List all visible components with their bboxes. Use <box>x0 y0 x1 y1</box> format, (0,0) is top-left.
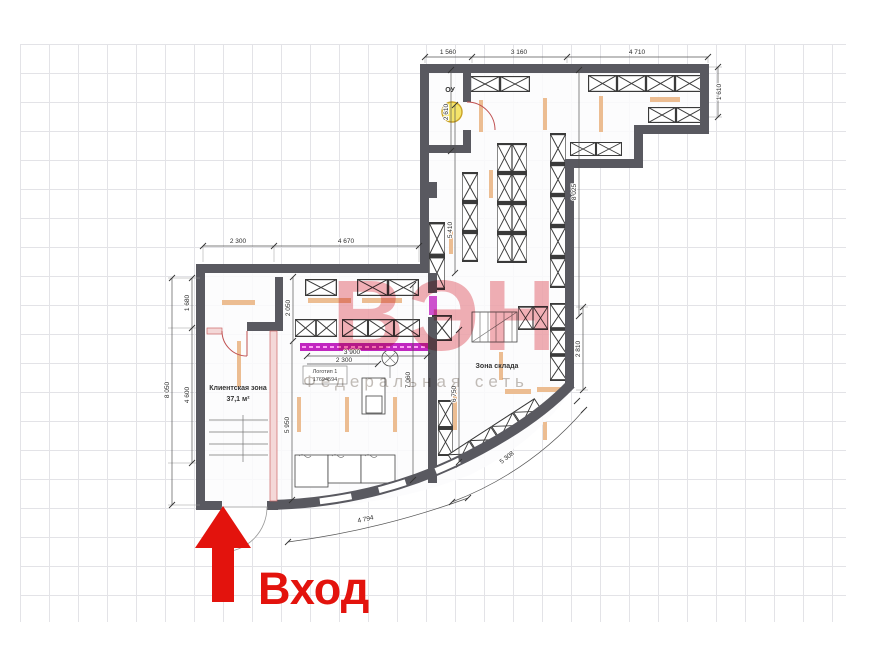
fixture-strip <box>650 97 680 102</box>
shelf-cell <box>512 144 526 172</box>
shelf-cell <box>550 227 565 256</box>
shelf-cell <box>597 142 622 155</box>
shelf-cell <box>429 223 444 255</box>
dim-label: 8 050 <box>164 381 171 398</box>
fixture-strip <box>297 397 301 432</box>
shelf-cell <box>462 173 477 201</box>
shelf-cell <box>462 233 477 261</box>
shelf-cell <box>649 108 676 123</box>
dim-label: 4 670 <box>338 238 355 245</box>
shelf-cell <box>618 76 646 92</box>
shelf-cell <box>550 165 565 194</box>
shelf-cell <box>471 77 500 92</box>
dim-label: 8 025 <box>571 183 578 200</box>
dim-label: 2 300 <box>230 238 247 245</box>
dim-label: 4 710 <box>629 49 646 56</box>
shelf-cell <box>497 174 511 202</box>
shelf-cell <box>438 429 452 455</box>
dim-label: 1 680 <box>184 294 191 311</box>
floor-plan-canvas: Логотип 1 17694594 <box>0 0 870 652</box>
shelf-cell <box>497 234 511 262</box>
lighting-unit-label: ОУ <box>445 87 455 94</box>
shelf-cell <box>677 108 704 123</box>
shelf-cell <box>501 77 530 92</box>
shelf-cell <box>497 204 511 232</box>
dim-label: 1 610 <box>716 83 723 100</box>
shelf-cell <box>676 76 704 92</box>
shelf-cell <box>462 203 477 231</box>
dim-label: 5 950 <box>284 416 291 433</box>
watermark-subtitle: Федеральная сеть <box>303 372 529 391</box>
checkout-counters <box>295 455 395 488</box>
dim-label: 1 560 <box>440 49 457 56</box>
fixture-strip <box>345 397 349 432</box>
dim-label: 2 050 <box>285 299 292 316</box>
shelf-cell <box>497 144 511 172</box>
fixture-strip <box>489 170 493 198</box>
fixture-strip <box>599 96 603 132</box>
fixture-strip <box>393 397 397 432</box>
floor-plan-drawing: Логотип 1 17694594 <box>0 0 870 652</box>
shelf-cell <box>647 76 675 92</box>
shelf-cell <box>550 134 565 163</box>
shelf-cell <box>295 320 315 337</box>
dim-label: 4 794 <box>357 514 375 524</box>
dim-label: 5 410 <box>447 221 454 238</box>
watermark: ВЭН Федеральная сеть <box>303 260 560 391</box>
fixture-strip <box>543 98 547 130</box>
dim-label: 2 610 <box>443 103 450 120</box>
client-zone-area: 37,1 м² <box>226 396 250 403</box>
watermark-brand: ВЭН <box>332 260 560 372</box>
shelf-cell <box>438 401 452 427</box>
fixture-strip <box>222 300 255 305</box>
shelf-cell <box>512 204 526 232</box>
shelf-cell <box>550 196 565 225</box>
shelf-cell <box>589 76 617 92</box>
dim-label: 3 160 <box>511 49 528 56</box>
shelf-cell <box>512 174 526 202</box>
shelf-cell <box>571 142 596 155</box>
fixture-strip <box>543 422 547 440</box>
client-zone-label: Клиентская зона <box>209 385 267 392</box>
entrance-label: Вход <box>258 563 369 614</box>
dim-label: 4 600 <box>184 386 191 403</box>
dim-label: 2 810 <box>575 340 582 357</box>
shelf-cell <box>512 234 526 262</box>
fixture-strip <box>237 341 241 387</box>
